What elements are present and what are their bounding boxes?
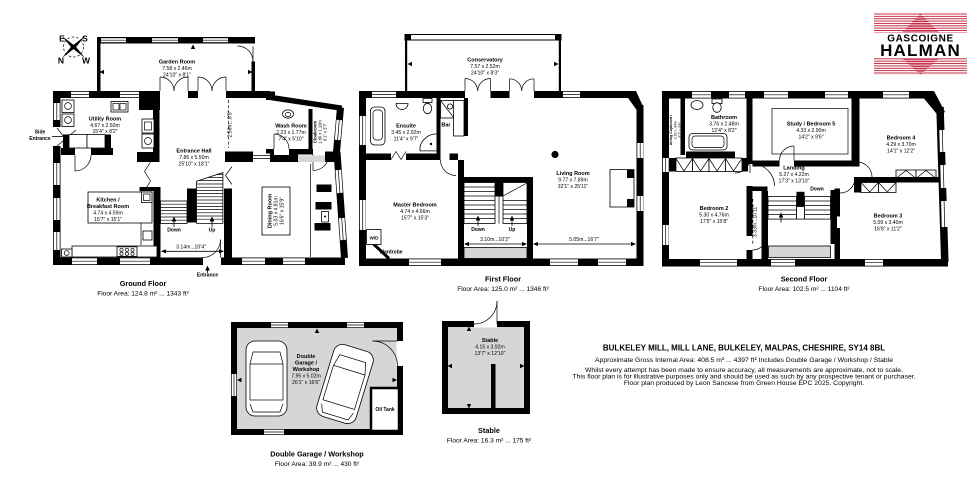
svg-text:Bedroom 4: Bedroom 4	[887, 136, 917, 142]
svg-text:Bar: Bar	[441, 123, 451, 129]
svg-text:5.30 x 4.76m: 5.30 x 4.76m	[699, 213, 728, 219]
svg-text:Master Bedroom: Master Bedroom	[393, 203, 437, 209]
svg-text:25'10" x 18'1": 25'10" x 18'1"	[179, 162, 210, 168]
svg-text:24'10" x 8'1": 24'10" x 8'1"	[163, 73, 191, 79]
svg-text:Entrance Hall: Entrance Hall	[176, 149, 212, 155]
svg-text:W: W	[82, 56, 91, 66]
svg-text:Garden Room: Garden Room	[159, 60, 195, 66]
svg-text:24'10" x 8'3": 24'10" x 8'3"	[471, 71, 499, 77]
svg-text:Kitchen /: Kitchen /	[96, 198, 120, 204]
svg-text:32'1" x 25'11": 32'1" x 25'11"	[558, 184, 589, 190]
svg-text:Stable: Stable	[478, 426, 500, 435]
svg-text:4.15 x 3.92m: 4.15 x 3.92m	[475, 345, 504, 351]
svg-text:First Floor: First Floor	[485, 275, 521, 284]
svg-text:2.56m...8'5": 2.56m...8'5"	[228, 110, 234, 137]
svg-text:Living Room: Living Room	[556, 171, 589, 177]
svg-text:Floor Area: 16.3 m² ... 175 ft: Floor Area: 16.3 m² ... 175 ft²	[447, 438, 532, 445]
svg-text:W/D: W/D	[370, 236, 380, 241]
svg-text:8'7" x 2'9": 8'7" x 2'9"	[678, 122, 682, 138]
svg-text:7.86 x 5.50m: 7.86 x 5.50m	[179, 155, 208, 161]
svg-text:6'1" x 3'7": 6'1" x 3'7"	[323, 123, 328, 141]
svg-text:2.62 x .84m: 2.62 x .84m	[674, 121, 678, 139]
svg-text:Landing: Landing	[783, 166, 804, 172]
svg-text:S: S	[82, 34, 88, 44]
svg-text:Airing Cupboard /: Airing Cupboard /	[669, 115, 673, 145]
svg-text:Up: Up	[509, 227, 516, 233]
svg-text:5.09 x 3.40m: 5.09 x 3.40m	[873, 220, 902, 226]
svg-text:17'3" x 13'10": 17'3" x 13'10"	[779, 179, 810, 185]
svg-text:Floor Area: 102.5 m² ... 1104: Floor Area: 102.5 m² ... 1104 ft²	[758, 286, 850, 293]
svg-text:Wardrobe: Wardrobe	[379, 250, 402, 256]
svg-text:Double: Double	[297, 354, 316, 360]
svg-text:2.23 x 1.77m: 2.23 x 1.77m	[276, 130, 305, 136]
svg-text:9.77 x 7.89m: 9.77 x 7.89m	[558, 178, 587, 184]
svg-text:Ground Floor: Ground Floor	[120, 279, 167, 288]
svg-text:26'1" x 16'6": 26'1" x 16'6"	[292, 380, 320, 386]
svg-text:3.45 x 2.92m: 3.45 x 2.92m	[391, 130, 420, 136]
svg-text:11'4" x 9'7": 11'4" x 9'7"	[394, 137, 419, 143]
svg-text:Down: Down	[167, 228, 181, 234]
svg-text:N: N	[58, 56, 64, 66]
svg-text:Entrance: Entrance	[29, 136, 51, 142]
svg-text:Down: Down	[471, 227, 485, 233]
svg-text:15'7" x 15'1": 15'7" x 15'1"	[94, 217, 122, 223]
svg-text:Bedroom 3: Bedroom 3	[874, 214, 903, 220]
svg-text:Bathroom: Bathroom	[711, 115, 737, 121]
svg-text:Side: Side	[35, 130, 46, 136]
svg-text:BULKELEY MILL, MILL LANE, BULK: BULKELEY MILL, MILL LANE, BULKELEY, MALP…	[603, 344, 885, 353]
svg-text:5.27 x 4.22m: 5.27 x 4.22m	[779, 172, 808, 178]
svg-text:E: E	[59, 34, 65, 44]
svg-text:Workshop: Workshop	[293, 367, 320, 373]
svg-text:3.10m...10'2": 3.10m...10'2"	[480, 237, 510, 243]
svg-text:Stable: Stable	[482, 338, 499, 344]
svg-text:15'7" x 15'3": 15'7" x 15'3"	[401, 216, 429, 222]
svg-text:Entrance: Entrance	[197, 273, 219, 279]
svg-text:Floor Area: 125.0 m² ... 1346: Floor Area: 125.0 m² ... 1346 ft²	[457, 286, 549, 293]
svg-text:Approximate Gross Internal Are: Approximate Gross Internal Area: 408.5 m…	[595, 357, 893, 364]
svg-text:14'2" x 9'6": 14'2" x 9'6"	[798, 135, 823, 141]
svg-text:Breakfast Room: Breakfast Room	[87, 204, 129, 210]
svg-text:Up: Up	[209, 228, 216, 234]
svg-text:13'7" x 12'10": 13'7" x 12'10"	[475, 351, 506, 357]
svg-text:Second Floor: Second Floor	[781, 275, 828, 284]
svg-text:12'4" x 8'2": 12'4" x 8'2"	[711, 128, 736, 134]
svg-text:7.57 x 2.52m: 7.57 x 2.52m	[470, 64, 499, 70]
svg-text:Down: Down	[810, 187, 824, 193]
svg-text:3.33m...10'11": 3.33m...10'11"	[753, 205, 759, 237]
svg-text:Floor Area: 124.8 m² ... 1343: Floor Area: 124.8 m² ... 1343 ft²	[97, 291, 189, 298]
svg-text:14'1" x 12'2": 14'1" x 12'2"	[887, 149, 915, 155]
svg-text:5.05m...16'7": 5.05m...16'7"	[569, 237, 599, 243]
svg-text:Double Garage / Workshop: Double Garage / Workshop	[270, 450, 364, 459]
svg-text:7.58 x 2.46m: 7.58 x 2.46m	[162, 66, 191, 72]
svg-text:Utility Room: Utility Room	[89, 117, 121, 123]
svg-text:17'5" x 15'8": 17'5" x 15'8"	[700, 219, 728, 225]
svg-text:Bedroom 2: Bedroom 2	[700, 206, 729, 212]
svg-text:4.29 x 3.70m: 4.29 x 3.70m	[886, 142, 915, 148]
svg-text:3.14m...10'4": 3.14m...10'4"	[176, 245, 206, 251]
svg-text:Wash Room: Wash Room	[275, 124, 307, 130]
svg-text:Ensuite: Ensuite	[396, 124, 416, 130]
svg-text:7.95 x 5.02m: 7.95 x 5.02m	[291, 374, 320, 380]
svg-text:Oil Tank: Oil Tank	[375, 407, 395, 413]
svg-text:Garage /: Garage /	[295, 361, 317, 367]
svg-text:15'4" x 8'2": 15'4" x 8'2"	[92, 129, 117, 135]
svg-text:16'8" x 11'2": 16'8" x 11'2"	[874, 227, 902, 233]
svg-text:Conservatory: Conservatory	[467, 58, 503, 64]
svg-text:4.67 x 2.50m: 4.67 x 2.50m	[90, 123, 119, 129]
svg-text:HALMAN: HALMAN	[880, 41, 961, 60]
svg-text:Study / Bedroom 5: Study / Bedroom 5	[787, 122, 836, 128]
svg-text:Floor plan produced by Leon Sa: Floor plan produced by Leon Sancese from…	[624, 380, 864, 387]
svg-text:4.74 x 4.59m: 4.74 x 4.59m	[93, 211, 122, 217]
svg-text:16'6" x 15'9": 16'6" x 15'9"	[280, 197, 286, 225]
svg-text:4.33 x 2.90m: 4.33 x 2.90m	[796, 128, 825, 134]
svg-text:7'4" x 5'10": 7'4" x 5'10"	[278, 137, 303, 143]
svg-text:4.74 x 4.66m: 4.74 x 4.66m	[400, 209, 429, 215]
svg-text:3.76 x 2.48m: 3.76 x 2.48m	[709, 122, 738, 128]
svg-text:Floor Area: 39.9 m² ... 430 ft: Floor Area: 39.9 m² ... 430 ft²	[275, 461, 360, 468]
